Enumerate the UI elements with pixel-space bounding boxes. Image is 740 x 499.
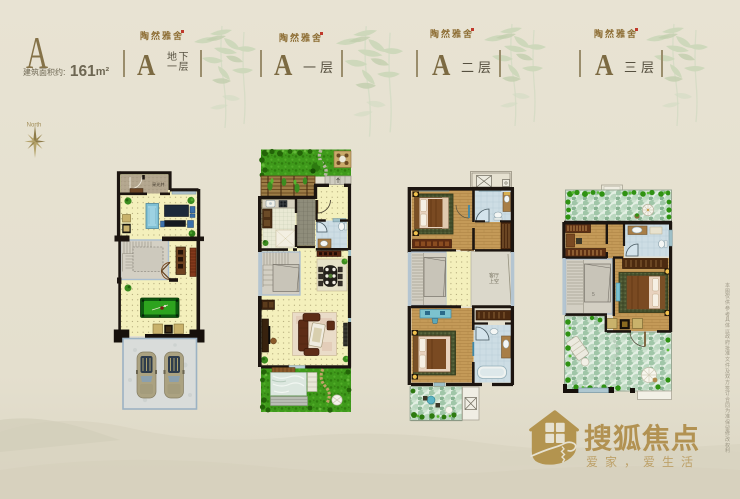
svg-text:客厅: 客厅 xyxy=(489,272,499,279)
svg-text:采光井: 采光井 xyxy=(152,181,165,188)
svg-text:North: North xyxy=(27,123,42,129)
svg-text:上空: 上空 xyxy=(489,278,499,285)
svg-text:5: 5 xyxy=(592,292,595,298)
